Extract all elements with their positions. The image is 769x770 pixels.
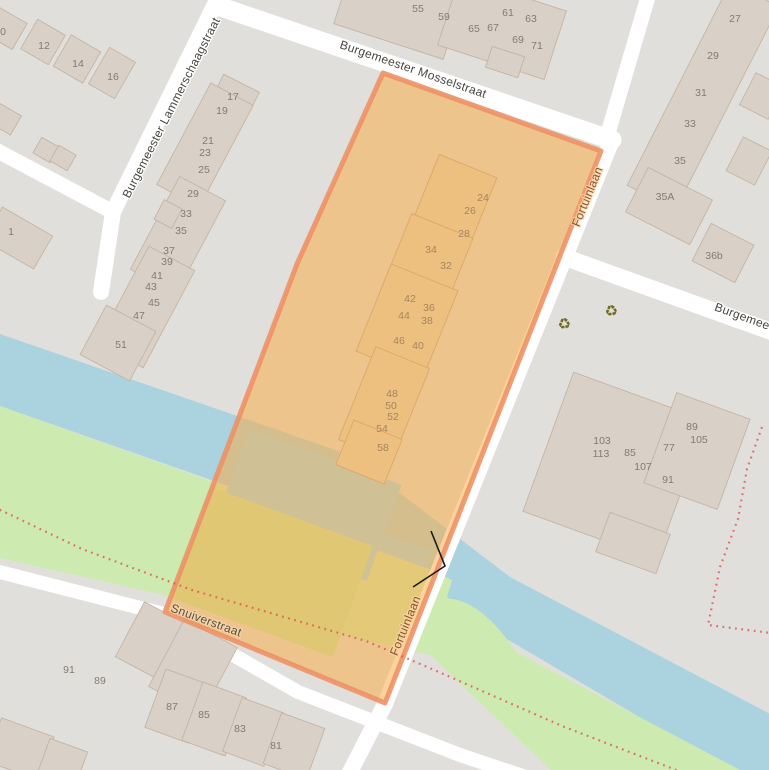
- house-number: 85: [198, 709, 210, 721]
- recycling-icon: ♻: [604, 302, 620, 321]
- house-number: 54: [376, 423, 388, 435]
- house-number: 105: [690, 434, 708, 446]
- house-number: 33: [180, 208, 192, 220]
- house-number: 85: [624, 447, 636, 459]
- house-number: 29: [707, 50, 719, 62]
- house-number: 55: [412, 3, 424, 15]
- house-number: 43: [145, 281, 157, 293]
- house-number: 87: [166, 701, 178, 713]
- house-number: 47: [133, 310, 145, 322]
- house-number: 1: [8, 226, 14, 238]
- house-number: 32: [440, 260, 452, 272]
- house-number: 38: [421, 315, 433, 327]
- house-number: 103: [593, 435, 611, 447]
- house-number: 42: [404, 293, 416, 305]
- house-number: 14: [72, 58, 84, 70]
- house-number: 91: [63, 664, 75, 676]
- house-number: 113: [593, 448, 610, 460]
- house-number: 89: [94, 675, 106, 687]
- recycling-icon: ♻: [557, 315, 573, 334]
- house-number: 81: [270, 740, 282, 752]
- map-canvas[interactable]: ♻♻ Burgemeester LammerschaagstraatBurgem…: [0, 0, 769, 770]
- house-number: 107: [634, 461, 652, 473]
- house-number: 83: [234, 723, 246, 735]
- house-number: 58: [377, 442, 389, 454]
- map-viewport[interactable]: ♻♻ Burgemeester LammerschaagstraatBurgem…: [0, 0, 769, 770]
- house-number: 17: [227, 91, 239, 103]
- house-number: 52: [387, 411, 399, 423]
- house-number: 48: [386, 388, 398, 400]
- house-number: 36b: [705, 250, 723, 262]
- house-number: 33: [684, 118, 696, 130]
- house-number: 21: [202, 135, 214, 147]
- house-number: 44: [398, 310, 410, 322]
- house-number: 27: [729, 13, 741, 25]
- house-number: 89: [686, 421, 698, 433]
- house-number: 77: [663, 442, 675, 454]
- house-number: 46: [393, 335, 405, 347]
- house-number: 67: [487, 22, 499, 34]
- house-number: 26: [464, 205, 476, 217]
- house-number: 24: [477, 192, 489, 204]
- house-number: 69: [512, 34, 524, 46]
- house-number: 25: [198, 164, 210, 176]
- house-number: 36: [423, 302, 435, 314]
- house-number: 51: [115, 339, 127, 351]
- house-number: 19: [216, 105, 228, 117]
- house-number: 61: [502, 7, 514, 19]
- house-number: 31: [695, 87, 707, 99]
- house-number: 91: [662, 474, 674, 486]
- house-number: 35: [175, 225, 187, 237]
- house-number: 40: [412, 340, 424, 352]
- house-number: 0: [0, 26, 6, 38]
- house-number: 16: [107, 71, 119, 83]
- house-number: 65: [468, 23, 480, 35]
- house-number: 59: [438, 11, 450, 23]
- house-number: 23: [199, 147, 211, 159]
- house-number: 45: [148, 297, 160, 309]
- house-number: 12: [38, 40, 50, 52]
- house-number: 63: [525, 13, 537, 25]
- house-number: 39: [161, 256, 173, 268]
- house-number: 29: [187, 188, 199, 200]
- house-number: 35A: [656, 191, 675, 203]
- house-number: 34: [425, 244, 437, 256]
- house-number: 35: [674, 155, 686, 167]
- house-number: 71: [531, 40, 543, 52]
- house-number: 28: [458, 228, 470, 240]
